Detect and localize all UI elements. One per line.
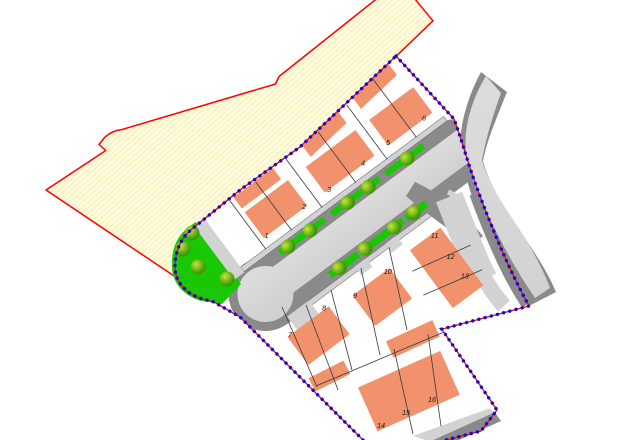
svg-text:3: 3 bbox=[327, 185, 331, 194]
svg-text:2: 2 bbox=[301, 202, 306, 211]
svg-text:12: 12 bbox=[446, 252, 454, 261]
svg-text:14: 14 bbox=[377, 421, 385, 430]
svg-text:1: 1 bbox=[264, 231, 268, 240]
svg-text:16: 16 bbox=[428, 395, 437, 404]
svg-text:4: 4 bbox=[361, 159, 365, 168]
svg-text:13: 13 bbox=[461, 272, 469, 281]
svg-text:15: 15 bbox=[402, 408, 411, 417]
svg-text:10: 10 bbox=[384, 267, 392, 276]
svg-text:9: 9 bbox=[353, 291, 357, 300]
svg-text:11: 11 bbox=[431, 231, 439, 240]
